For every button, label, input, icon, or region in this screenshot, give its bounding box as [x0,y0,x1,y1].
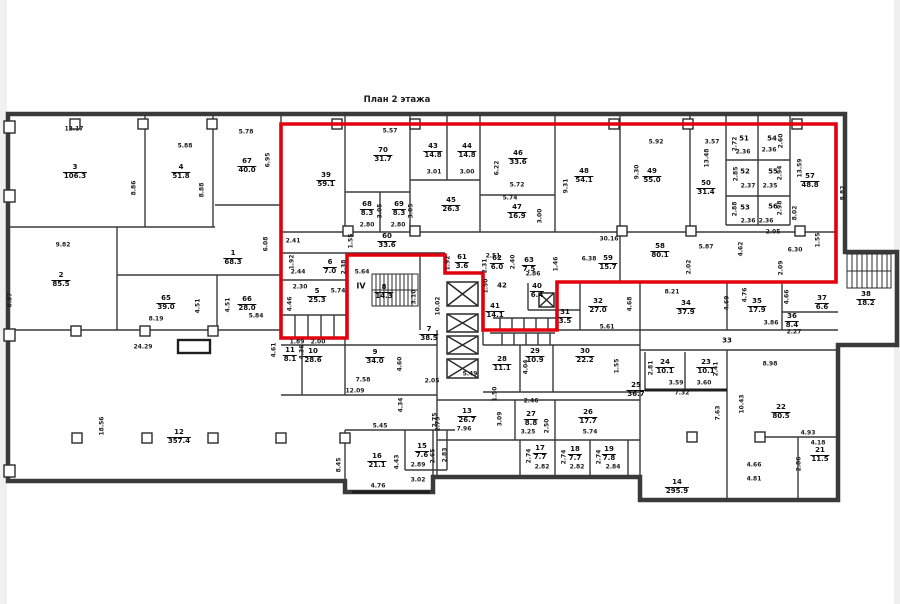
plan-title: План 2 этажа [364,95,431,105]
inner-walls [8,114,838,500]
stairwell-right [847,254,891,288]
floor-plan-drawing [0,0,900,604]
stairwell-iv [372,274,418,306]
floor-plan-page: План 2 этажа 3106.3451.86740.0168.3285.5… [0,0,900,604]
highlight-outline [281,124,836,338]
shaft-box [178,340,210,353]
